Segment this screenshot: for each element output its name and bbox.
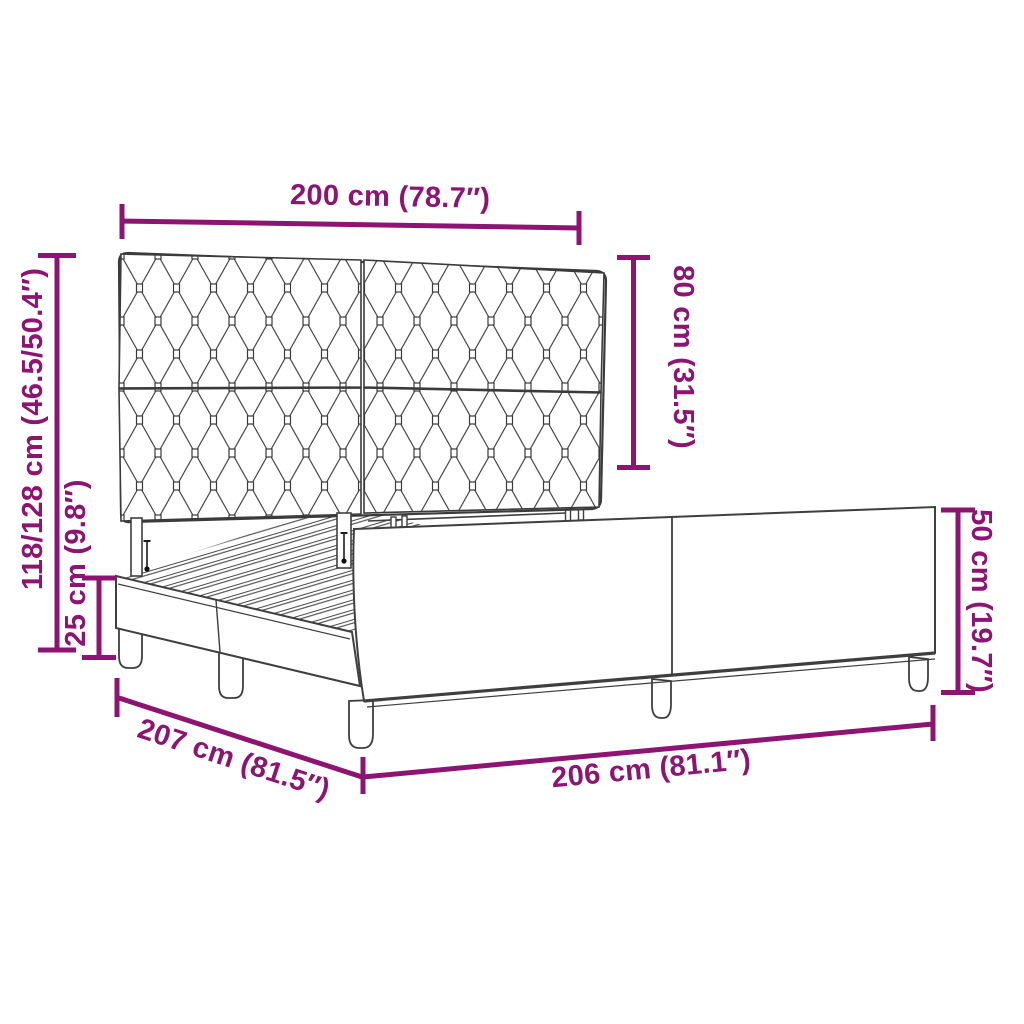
- dimension-headboard-width: 200 cm (78.7″): [122, 179, 579, 245]
- dimension-label: 25 cm (9.8″): [60, 479, 92, 646]
- leg-front-right: [909, 657, 928, 691]
- front-side-rail: [353, 507, 935, 707]
- headboard-panel-lower-left: [119, 388, 361, 521]
- leg-front-middle: [652, 679, 671, 718]
- dimension-side-rail-height: 50 cm (19.7″): [941, 509, 997, 693]
- dimension-diagram: 200 cm (78.7″) 80 cm (31.5″) 118/128 cm …: [0, 0, 1024, 1024]
- leg-front-left: [119, 629, 142, 668]
- headboard-panel-lower-right: [364, 388, 601, 513]
- dimension-base-height: 25 cm (9.8″): [60, 479, 116, 657]
- dimension-label: 80 cm (31.5″): [667, 265, 699, 449]
- dimension-label: 200 cm (78.7″): [290, 179, 491, 215]
- headboard-panel-upper-right: [364, 260, 604, 392]
- dimension-headboard-height: 80 cm (31.5″): [617, 258, 699, 468]
- dimension-label: 118/128 cm (46.5/50.4″): [17, 268, 49, 590]
- dimension-frame-length: 206 cm (81.1″): [363, 705, 933, 794]
- dimension-frame-depth: 207 cm (81.5″): [117, 678, 363, 806]
- headboard: [119, 253, 606, 522]
- bed-frame-diagram: 200 cm (78.7″) 80 cm (31.5″) 118/128 cm …: [0, 0, 1024, 1024]
- headboard-panel-upper-left: [119, 254, 361, 388]
- bed-frame-drawing: [116, 253, 935, 748]
- dimension-label: 50 cm (19.7″): [965, 509, 997, 693]
